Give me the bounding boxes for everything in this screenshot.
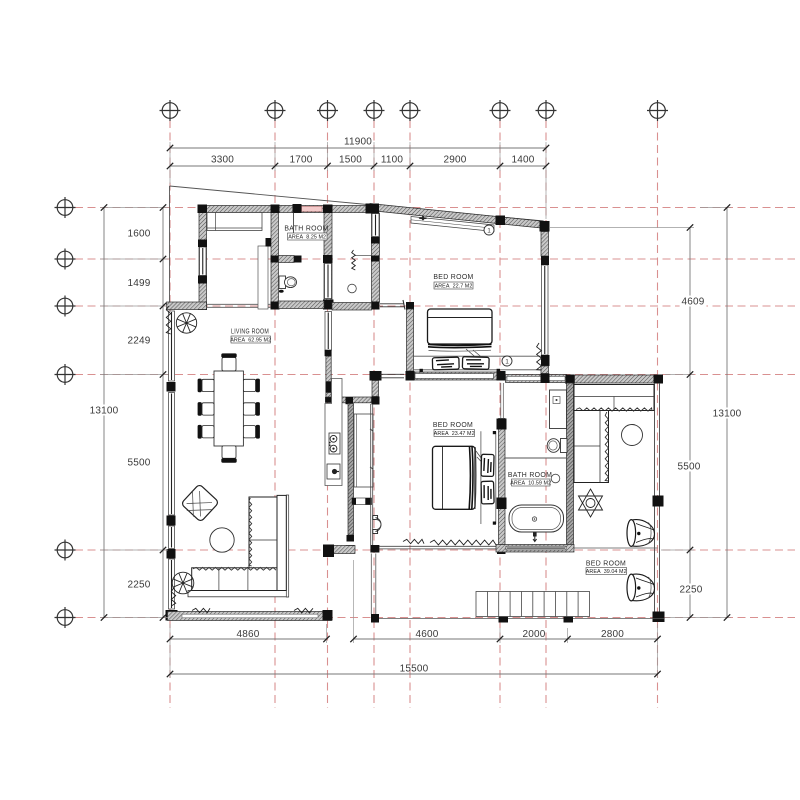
svg-text:AREA 62.95 M2: AREA 62.95 M2 [230,338,271,344]
svg-text:5500: 5500 [127,458,150,469]
svg-text:2800: 2800 [601,629,624,640]
svg-text:11900: 11900 [344,137,372,148]
svg-text:LIVING ROOM: LIVING ROOM [231,329,269,336]
svg-text:3300: 3300 [211,155,234,166]
svg-text:5500: 5500 [677,462,700,473]
svg-text:2249: 2249 [127,336,150,347]
svg-text:1700: 1700 [289,155,312,166]
svg-text:1600: 1600 [127,229,150,240]
svg-text:1499: 1499 [127,278,150,289]
svg-text:2900: 2900 [443,155,466,166]
svg-text:AREA 8.25 M2: AREA 8.25 M2 [288,235,326,241]
svg-text:2000: 2000 [522,629,545,640]
svg-text:BATH ROOM: BATH ROOM [508,472,552,479]
svg-text:1500: 1500 [339,155,362,166]
svg-text:13100: 13100 [713,409,742,420]
svg-text:4609: 4609 [681,297,704,308]
svg-text:AREA 22.7 M2: AREA 22.7 M2 [435,284,473,290]
svg-text:BED ROOM: BED ROOM [586,561,626,568]
svg-text:13100: 13100 [90,406,119,417]
svg-text:AREA 39.04 M2: AREA 39.04 M2 [586,569,627,575]
svg-text:4600: 4600 [415,629,438,640]
svg-text:BED ROOM: BED ROOM [433,274,473,281]
svg-text:2250: 2250 [679,585,702,596]
svg-text:AREA 10.59 M2: AREA 10.59 M2 [510,481,551,487]
svg-text:BATH ROOM: BATH ROOM [284,226,328,233]
svg-text:2250: 2250 [127,580,150,591]
svg-text:AREA 23.47 M2: AREA 23.47 M2 [434,431,475,437]
svg-text:1: 1 [505,359,509,366]
svg-text:1: 1 [487,228,491,235]
svg-text:1100: 1100 [381,155,404,166]
svg-text:BED ROOM: BED ROOM [433,422,473,429]
svg-text:15500: 15500 [400,664,429,675]
svg-text:4860: 4860 [236,629,259,640]
svg-text:1400: 1400 [511,155,534,166]
